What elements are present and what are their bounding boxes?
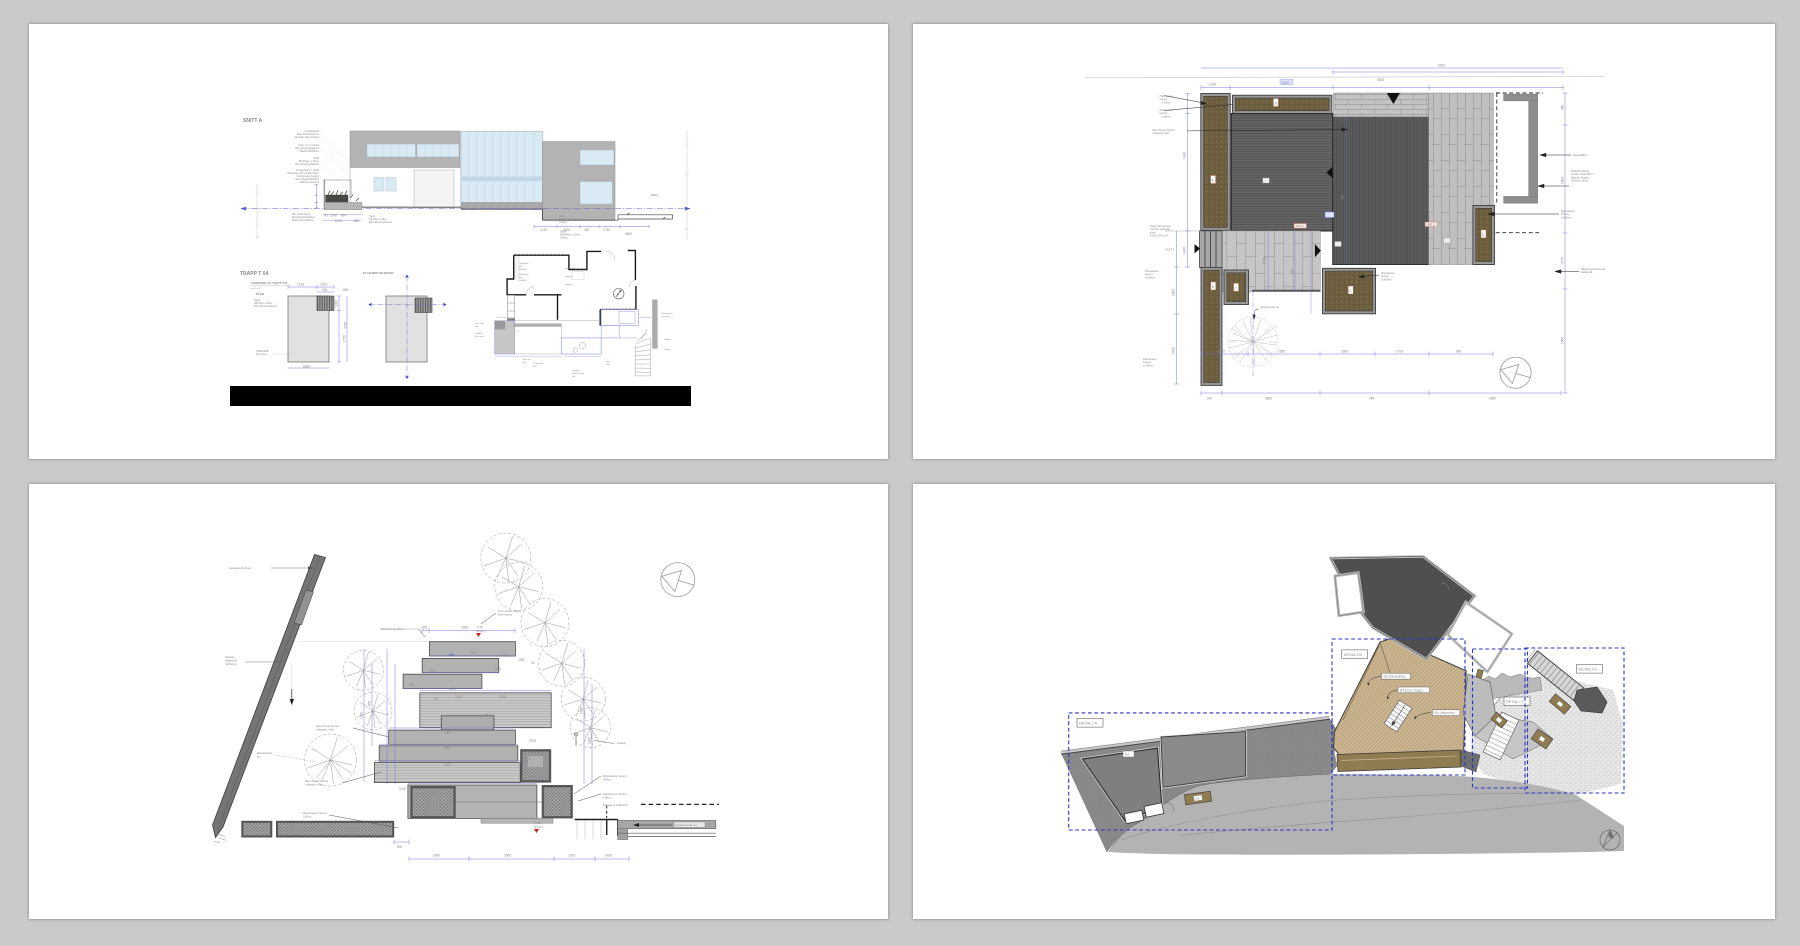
svg-text:Tilpasse til bakkenivå: Tilpasse til bakkenivå	[603, 803, 628, 807]
svg-text:Mrt200mm u:17mm: Mrt200mm u:17mm	[560, 234, 580, 237]
svg-text:Gasope/Bod: Gasope/Bod	[1573, 154, 1588, 157]
svg-text:1200: 1200	[529, 739, 536, 743]
svg-text:1700: 1700	[1263, 257, 1267, 264]
svg-text:B5 (rekkverk): B5 (rekkverk)	[1434, 711, 1454, 715]
svg-text:4800: 4800	[444, 763, 451, 767]
svg-text:h:h8mm: h:h8mm	[1162, 115, 1171, 118]
svg-text:1140: 1140	[330, 214, 337, 218]
svg-text:NIVÅ 4: NIVÅ 4	[476, 628, 486, 633]
svg-text:Gelt: Gelt	[518, 265, 522, 268]
svg-text:Mrk. 15-60 Pplent: Mrk. 15-60 Pplent	[292, 213, 310, 216]
svg-text:St-takbekledd: St-takbekledd	[305, 130, 320, 133]
svg-text:Mere Royal Gelbaknust: Mere Royal Gelbaknust	[295, 147, 319, 150]
svg-text:1400: 1400	[1183, 152, 1187, 159]
svg-text:Trinn i skifer, granitt: Trinn i skifer, granitt	[498, 609, 521, 613]
svg-text:3800: 3800	[1265, 397, 1272, 401]
svg-text:Lys: Lys	[606, 361, 610, 363]
svg-text:h:60cm: h:60cm	[603, 778, 612, 782]
svg-text:2900: 2900	[461, 626, 468, 630]
svg-text:Uplettet: Uplettet	[565, 275, 573, 278]
svg-text:1400: 1400	[1183, 247, 1187, 254]
svg-text:1180: 1180	[1218, 350, 1225, 354]
svg-text:1. Apetalet: 1. Apetalet	[518, 262, 529, 265]
svg-text:860: 860	[343, 288, 349, 292]
svg-text:2560: 2560	[504, 854, 511, 858]
svg-text:4450: 4450	[449, 687, 456, 691]
svg-text:1140: 1140	[399, 787, 406, 791]
svg-text:h:90cm: h:90cm	[603, 796, 612, 800]
svg-text:Mrk pat: Mrk pat	[523, 358, 531, 361]
svg-text:Roaten Det Gelbknst: Roaten Det Gelbknst	[292, 219, 314, 222]
svg-text:1560: 1560	[1561, 337, 1565, 344]
svg-text:h:hSmm: h:hSmm	[1162, 101, 1171, 104]
svg-text:tre: tre	[257, 755, 261, 759]
svg-text:800: 800	[484, 713, 490, 717]
svg-text:Mrt: Mrt	[572, 375, 576, 378]
svg-text:B4 (mur, trapp): B4 (mur, trapp)	[1400, 688, 1423, 692]
svg-text:2900: 2900	[1341, 350, 1348, 354]
svg-text:Lekteguly, svart: Lekteguly, svart	[316, 728, 334, 732]
svg-text:Rekkevierk 1 e, Ulmst: Rekkevierk 1 e, Ulmst	[297, 169, 320, 172]
svg-text:2750: 2750	[429, 669, 436, 673]
svg-text:Mrt200mm u:17mm: Mrt200mm u:17mm	[559, 218, 579, 221]
svg-text:Mrt royal: Mrt royal	[475, 335, 484, 338]
svg-text:h:300mm: h:300mm	[1381, 278, 1391, 281]
svg-text:bakkenivå: bakkenivå	[225, 659, 237, 663]
svg-text:Gelt: Gelt	[518, 276, 522, 279]
svg-text:Lekteguly, svart: Lekteguly, svart	[1152, 132, 1170, 135]
svg-text:Gelbkn: Gelbkn	[475, 333, 483, 335]
svg-text:2400: 2400	[563, 228, 570, 232]
svg-text:2000: 2000	[499, 695, 506, 699]
svg-text:2. Apetalet: 2. Apetalet	[518, 273, 529, 276]
svg-text:1700: 1700	[455, 695, 462, 699]
svg-text:1200: 1200	[568, 854, 575, 858]
svg-text:2130: 2130	[335, 219, 342, 223]
svg-text:600: 600	[368, 700, 372, 706]
svg-text:2136: 2136	[297, 283, 304, 287]
svg-text:alle farah, farm konstekt: alle farah, farm konstekt	[294, 136, 319, 139]
svg-text:Plantekasse, betong: Plantekasse, betong	[303, 811, 327, 815]
svg-text:1730: 1730	[603, 228, 610, 232]
svg-text:2370: 2370	[1561, 257, 1565, 264]
svg-text:2735: 2735	[343, 335, 347, 342]
svg-text:Lekteguly, svart: Lekteguly, svart	[305, 783, 323, 787]
svg-text:DETALJ A: DETALJ A	[1079, 721, 1097, 726]
svg-text:300 Pilene, u:15mm: 300 Pilene, u:15mm	[299, 161, 320, 163]
svg-text:1145: 1145	[540, 228, 547, 232]
svg-text:Mere Royal Concise: Mere Royal Concise	[305, 779, 329, 783]
svg-text:600: 600	[1290, 268, 1294, 274]
svg-text:1800: 1800	[1561, 177, 1565, 184]
svg-text:Taprill: Taprill	[559, 215, 565, 218]
svg-text:300 Pllne, u:15mv: 300 Pllne, u:15mv	[369, 219, 388, 221]
svg-text:och frstg: och frstg	[661, 315, 670, 318]
svg-text:Plantekasse, betong: Plantekasse, betong	[603, 792, 627, 796]
svg-text:bakkenivå: bakkenivå	[1581, 271, 1593, 274]
svg-text:h:150 x 300 mm: h:150 x 300 mm	[1150, 235, 1168, 238]
svg-text:6390: 6390	[1438, 64, 1445, 68]
svg-text:DETALJ D: DETALJ D	[1578, 667, 1597, 672]
svg-text:Gelbkn: Gelbkn	[664, 339, 672, 341]
svg-text:897: 897	[341, 214, 347, 218]
svg-text:h:300mm: h:300mm	[1145, 276, 1155, 279]
svg-text:Tykkelse 15mm.: Tykkelse 15mm.	[1571, 180, 1589, 183]
svg-text:350: 350	[584, 228, 590, 232]
svg-text:4800: 4800	[1282, 81, 1289, 85]
svg-text:4300: 4300	[444, 731, 451, 735]
svg-text:- PLAN: - PLAN	[254, 292, 264, 296]
svg-text:Eksisterende vei: Eksisterende vei	[676, 823, 698, 827]
svg-text:Und lignteitg, fametpu: Und lignteitg, fametpu	[297, 175, 320, 178]
svg-text:1430: 1430	[605, 854, 612, 858]
svg-text:SNIT 3: SNIT 3	[1427, 223, 1436, 227]
svg-text:1200: 1200	[588, 737, 592, 744]
svg-text:3600: 3600	[625, 232, 632, 236]
svg-text:300x600: 300x600	[518, 269, 527, 271]
svg-text:Mere Royal Gelbaknust: Mere Royal Gelbaknust	[295, 163, 319, 166]
svg-text:Mrt: Mrt	[523, 361, 527, 364]
svg-text:NIVÅ 1: NIVÅ 1	[534, 824, 544, 829]
svg-text:Vnt. tregt: Vnt. tregt	[475, 322, 484, 325]
svg-text:900: 900	[1341, 194, 1345, 200]
svg-text:4800: 4800	[444, 746, 451, 750]
svg-text:Taprill: Taprill	[313, 157, 319, 160]
svg-text:Taprill: Taprill	[254, 299, 260, 302]
svg-text:(skråning): (skråning)	[225, 662, 237, 666]
svg-text:Mrt: Mrt	[475, 325, 479, 328]
svg-text:DETALJ C: DETALJ C	[1506, 699, 1525, 704]
svg-text:2890: 2890	[1489, 397, 1496, 401]
svg-text:Eksisterende: Eksisterende	[257, 751, 273, 755]
svg-text:t:HELPL MM-B6mm: t:HELPL MM-B6mm	[299, 150, 319, 153]
svg-text:DETALJ B: DETALJ B	[1344, 652, 1363, 657]
svg-text:A1: A1	[1125, 753, 1129, 757]
svg-text:4735: 4735	[344, 322, 348, 329]
svg-text:Eksisterende huset: Eksisterende huset	[229, 566, 251, 570]
svg-text:600: 600	[519, 658, 525, 662]
svg-text:940: 940	[1207, 397, 1213, 401]
svg-text:SNIT 1: SNIT 1	[1165, 248, 1175, 252]
svg-text:h:600mm: h:600mm	[1561, 216, 1571, 219]
svg-text:Mere Royal Gelbknust: Mere Royal Gelbknust	[254, 305, 277, 308]
svg-text:4400: 4400	[1172, 347, 1176, 354]
svg-text:TRAPP T 04: TRAPP T 04	[240, 271, 268, 277]
svg-text:Terrasse prt: Terrasse prt	[661, 312, 673, 315]
svg-text:300x600 dlg: 300x600 dlg	[572, 373, 585, 375]
svg-text:eller betong: eller betong	[498, 613, 512, 617]
svg-text:600: 600	[409, 683, 415, 687]
svg-text:8365: 8365	[303, 365, 310, 369]
svg-text:3815: 3815	[1377, 78, 1384, 82]
svg-text:frame Dek: frame Dek	[256, 353, 267, 356]
svg-text:25: 25	[516, 331, 519, 333]
svg-text:2. Apetalet: 2. Apetalet	[533, 362, 544, 365]
svg-text:Uplettet: Uplettet	[565, 283, 573, 286]
svg-text:Mere Royal Concise: Mere Royal Concise	[316, 724, 340, 728]
svg-text:TERRASSE: TERRASSE	[256, 350, 269, 353]
svg-text:300 Pllne, u:15mv: 300 Pllne, u:15mv	[254, 303, 273, 305]
svg-text:Måling: Måling	[651, 194, 659, 197]
svg-text:Uteplass: Uteplass	[572, 369, 581, 372]
svg-text:1200: 1200	[320, 283, 327, 287]
svg-text:TERRASSE OG TRAPP T04: TERRASSE OG TRAPP T04	[251, 281, 288, 285]
svg-text:600: 600	[449, 653, 455, 657]
svg-text:Sentalrett: Sentalrett	[565, 267, 575, 270]
svg-text:Mere Royal Drtatt/Gript: Mere Royal Drtatt/Gript	[295, 178, 319, 181]
svg-text:Mrtl: Mrtl	[533, 365, 537, 368]
svg-text:SNIT 2: SNIT 2	[1296, 224, 1305, 228]
svg-text:t:din Entage 450 / antall / Ti: t:din Entage 450 / antall / Timpr.	[287, 172, 320, 175]
svg-text:Mere Royal Gelbknust: Mere Royal Gelbknust	[369, 221, 392, 224]
svg-text:Gelbng: Gelbng	[560, 238, 568, 240]
svg-text:1200: 1200	[580, 707, 584, 714]
svg-text:Tillerkend prismorp: Tillerkend prismorp	[300, 181, 320, 184]
svg-text:980: 980	[1456, 350, 1462, 354]
svg-text:Utedusj: Utedusj	[617, 741, 626, 745]
svg-text:1198: 1198	[1209, 83, 1216, 87]
svg-text:90: 90	[324, 214, 328, 218]
svg-text:1700: 1700	[1396, 350, 1403, 354]
svg-text:1000: 1000	[335, 300, 339, 307]
svg-text:Taprili: Taprili	[369, 215, 375, 218]
svg-text:Tilpasse: Tilpasse	[225, 655, 235, 659]
svg-text:B3 (treramme): B3 (treramme)	[1384, 675, 1406, 679]
svg-text:Eksisterende tre: Eksisterende tre	[1261, 306, 1280, 309]
svg-text:600: 600	[397, 845, 403, 849]
svg-text:300: 300	[422, 626, 428, 630]
svg-text:1800: 1800	[1172, 289, 1176, 296]
svg-text:908: 908	[322, 288, 328, 292]
svg-text:750: 750	[433, 697, 439, 701]
svg-text:360: 360	[1561, 104, 1565, 110]
svg-text:SNITT A: SNITT A	[243, 118, 263, 124]
svg-text:2300: 2300	[494, 667, 501, 671]
svg-text:300x600: 300x600	[518, 280, 527, 282]
svg-text:Plantekasse, betong: Plantekasse, betong	[603, 774, 627, 778]
svg-text:- PLAN MED SKJØTER: - PLAN MED SKJØTER	[361, 271, 394, 275]
svg-text:Mere Royal Gelbknust: Mere Royal Gelbknust	[292, 216, 315, 219]
svg-text:A2: A2	[1195, 796, 1200, 801]
svg-text:600: 600	[354, 219, 360, 223]
svg-text:Vindu - Fl. ut Cmdta: Vindu - Fl. ut Cmdta	[299, 144, 320, 147]
svg-text:459: 459	[1369, 397, 1375, 401]
svg-text:h:30cm: h:30cm	[303, 815, 312, 819]
svg-text:1200: 1200	[360, 712, 364, 719]
svg-text:450: 450	[502, 653, 508, 657]
svg-text:strip: strip	[606, 363, 611, 366]
svg-text:2750: 2750	[469, 651, 476, 655]
svg-text:Trapp: Trapp	[664, 348, 670, 351]
svg-text:mål 1:50: mål 1:50	[251, 287, 260, 290]
svg-text:Gelbng: Gelbng	[559, 222, 567, 224]
svg-text:1800: 1800	[433, 854, 440, 858]
svg-text:Mere Royal tilbehoret: Mere Royal tilbehoret	[297, 133, 319, 136]
svg-text:h:750mm: h:750mm	[1143, 364, 1153, 367]
svg-text:40: 40	[531, 661, 535, 665]
svg-text:700: 700	[526, 757, 532, 761]
svg-text:2580: 2580	[1278, 350, 1285, 354]
